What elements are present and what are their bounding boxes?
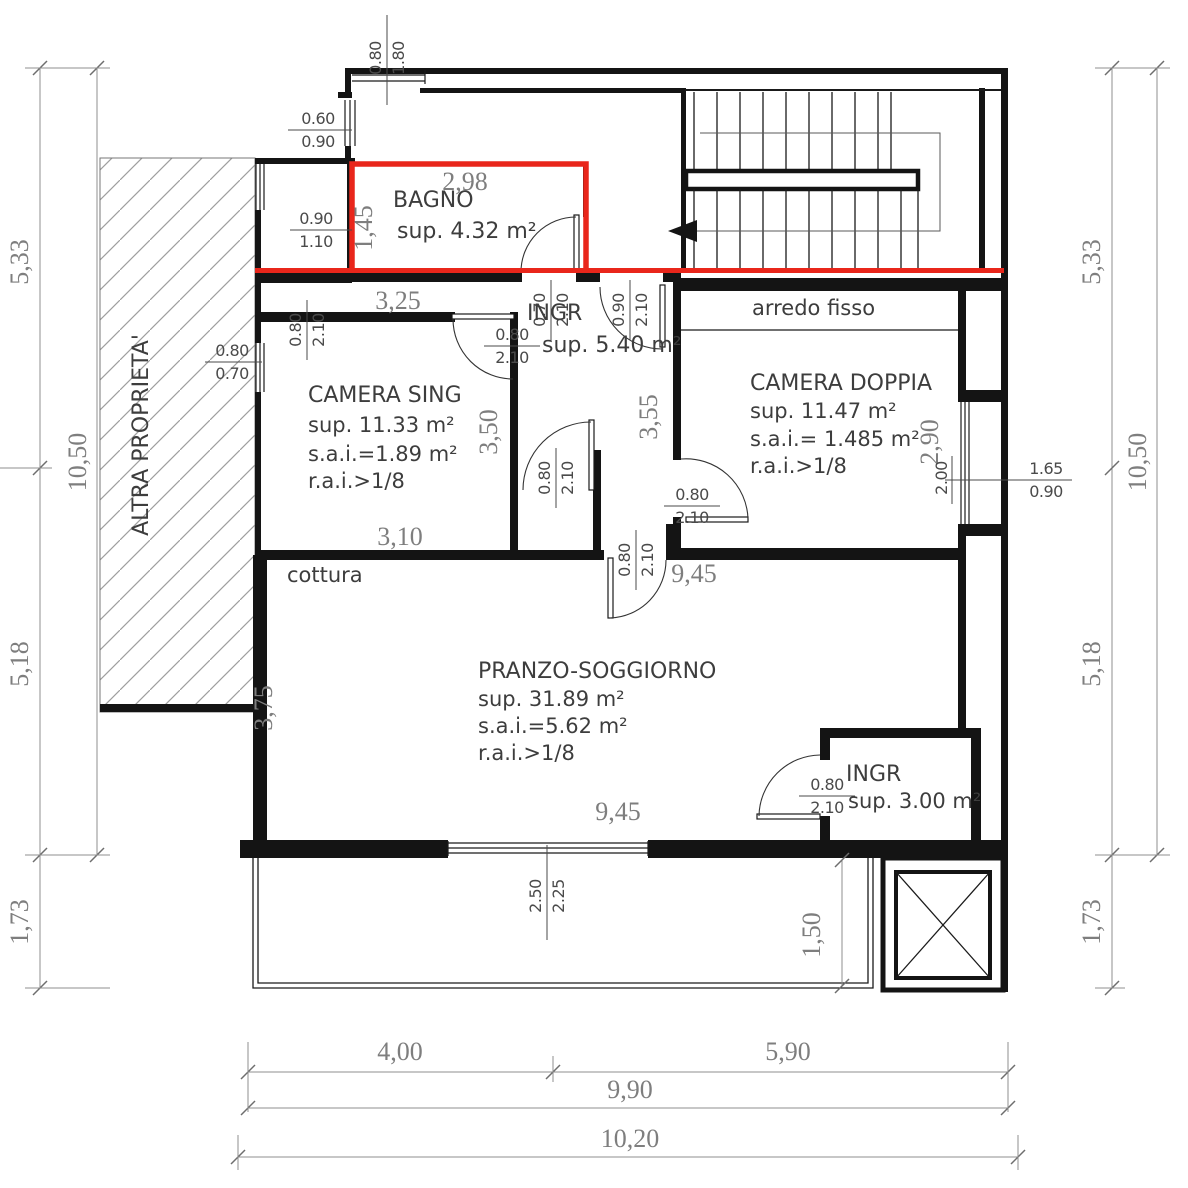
dim-living-top: 9,45 <box>671 559 717 588</box>
dim-bagno-height: 1,45 <box>349 205 378 251</box>
dim-entry-door: 0.90 2.10 <box>609 280 651 340</box>
svg-text:0.80: 0.80 <box>810 775 844 794</box>
dim-left-seg2: 5,18 <box>5 641 34 687</box>
stair-treads-upper <box>694 92 891 171</box>
dim-recess-window: 0.90 1.10 <box>290 209 342 251</box>
dim-left-seg1: 5,33 <box>5 239 34 285</box>
dim-sing-top: 3,25 <box>375 286 421 315</box>
svg-text:1.80: 1.80 <box>389 41 408 75</box>
label-cottura: cottura <box>287 563 363 587</box>
dim-top-window: 0.80 1.80 <box>366 28 408 88</box>
dim-closet-door: 0.80 2.10 <box>535 448 577 508</box>
svg-text:2.10: 2.10 <box>638 543 657 577</box>
window-recess-090 <box>256 164 264 210</box>
dim-bottom-sub: 9,90 <box>607 1075 653 1104</box>
dim-bottom-seg1: 4,00 <box>377 1037 423 1066</box>
room-pranzo-name: PRANZO-SOGGIORNO <box>478 659 716 684</box>
adjacent-property-area: ALTRA PROPRIETA' <box>100 158 257 712</box>
dim-small-window: 0.60 0.90 <box>290 109 346 151</box>
room-camera-doppia-sup: sup. 11.47 m² <box>750 399 897 423</box>
room-ingresso2-sup: sup. 3.00 m² <box>848 789 981 813</box>
dim-right-seg2: 5,18 <box>1077 641 1106 687</box>
dim-hall-height: 3,55 <box>634 394 663 440</box>
room-bagno-sup: sup. 4.32 m² <box>397 219 537 244</box>
dim-sing-height: 3,50 <box>474 409 503 455</box>
stair-treads-lower <box>694 189 918 268</box>
room-ingresso-sup: sup. 5.40 m² <box>542 333 682 358</box>
svg-text:2.10: 2.10 <box>810 798 844 817</box>
room-camera-sing-name: CAMERA SING <box>308 383 462 408</box>
dim-sing-door: 0.80 2.10 <box>286 300 328 360</box>
room-camera-doppia-name: CAMERA DOPPIA <box>750 371 932 396</box>
elevator-shaft <box>883 858 1008 992</box>
svg-text:0.90: 0.90 <box>609 293 628 327</box>
svg-text:0.80: 0.80 <box>675 485 709 504</box>
dim-living-window: 2.50 2.25 <box>526 861 568 931</box>
room-ingresso-name: INGR <box>527 301 582 326</box>
room-pranzo-sai: s.a.i.=5.62 m² <box>478 714 628 738</box>
dim-sing-bottom: 3,10 <box>377 522 423 551</box>
room-camera-sing-rai: r.a.i.>1/8 <box>308 469 405 493</box>
dim-right-seg1: 5,33 <box>1077 239 1106 285</box>
svg-text:2.10: 2.10 <box>632 293 651 327</box>
room-camera-sing-sup: sup. 11.33 m² <box>308 413 455 437</box>
svg-text:0.90: 0.90 <box>299 209 333 228</box>
dim-living-door: 0.80 2.10 <box>615 530 657 590</box>
dim-right-total: 10,50 <box>1123 433 1152 492</box>
svg-text:0.80: 0.80 <box>615 543 634 577</box>
stair-landing-rail <box>686 171 918 189</box>
svg-text:2.10: 2.10 <box>675 508 709 527</box>
adjacent-property-label: ALTRA PROPRIETA' <box>129 334 154 536</box>
svg-text:0.70: 0.70 <box>215 364 249 383</box>
dim-left-total: 10,50 <box>63 433 92 492</box>
svg-text:0.90: 0.90 <box>301 132 335 151</box>
dim-ingr-door: 0.80 2.10 <box>484 325 540 367</box>
svg-text:0.80: 0.80 <box>215 341 249 360</box>
svg-text:2.10: 2.10 <box>558 461 577 495</box>
dim-doppia-window: 1.65 0.90 <box>1020 459 1072 501</box>
svg-text:0.80: 0.80 <box>495 325 529 344</box>
dim-doppia-window-offset: 2.00 <box>932 461 951 495</box>
room-pranzo-rai: r.a.i.>1/8 <box>478 741 575 765</box>
dim-right-seg3: 1,73 <box>1077 899 1106 945</box>
label-arredo-fisso: arredo fisso <box>752 296 875 320</box>
room-bagno-name: BAGNO <box>393 188 474 213</box>
floor-plan-canvas: ALTRA PROPRIETA' <box>0 0 1188 1188</box>
balcony <box>253 858 873 988</box>
svg-text:2.50: 2.50 <box>526 879 545 913</box>
room-pranzo-sup: sup. 31.89 m² <box>478 687 625 711</box>
dim-living-height: 3,75 <box>249 685 278 731</box>
dim-living-bottom: 9,45 <box>595 797 641 826</box>
dim-left-seg3: 1,73 <box>5 899 34 945</box>
svg-text:2.10: 2.10 <box>495 348 529 367</box>
window-camera-doppia <box>961 402 969 524</box>
staircase <box>668 88 1001 270</box>
svg-text:0.80: 0.80 <box>286 313 305 347</box>
svg-text:0.90: 0.90 <box>1029 482 1063 501</box>
svg-text:2.10: 2.10 <box>309 313 328 347</box>
window-small-060 <box>345 100 355 146</box>
svg-text:0.60: 0.60 <box>301 109 335 128</box>
dim-balcony-depth: 1,50 <box>797 912 826 958</box>
window-living <box>448 841 648 856</box>
svg-text:0.80: 0.80 <box>535 461 554 495</box>
room-camera-doppia-sai: s.a.i.= 1.485 m² <box>750 427 920 451</box>
svg-text:1.10: 1.10 <box>299 232 333 251</box>
dim-bottom-seg2: 5,90 <box>765 1037 811 1066</box>
room-ingresso2-name: INGR <box>846 762 901 787</box>
svg-text:0.80: 0.80 <box>366 41 385 75</box>
room-camera-doppia-rai: r.a.i.>1/8 <box>750 454 847 478</box>
floor-plan-drawing: ALTRA PROPRIETA' <box>0 0 1188 1188</box>
dim-bottom-total: 10,20 <box>601 1124 660 1153</box>
room-camera-sing-sai: s.a.i.=1.89 m² <box>308 442 458 466</box>
svg-text:1.65: 1.65 <box>1029 459 1063 478</box>
window-camera-sing <box>256 343 264 392</box>
svg-text:2.25: 2.25 <box>549 879 568 913</box>
